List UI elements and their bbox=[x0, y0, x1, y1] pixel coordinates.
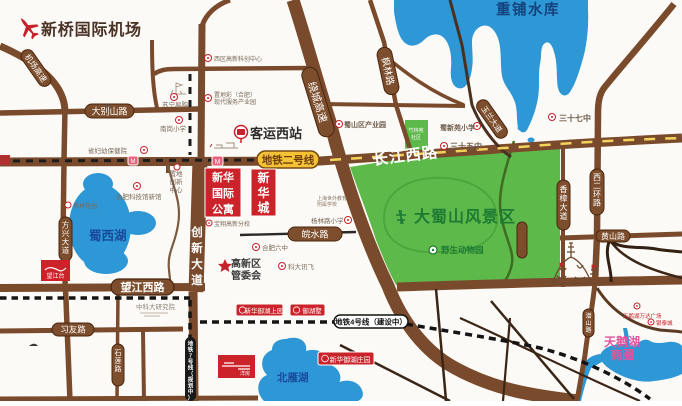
svg-text:西区高新科创中心: 西区高新科创中心 bbox=[214, 55, 262, 63]
svg-text:洋房: 洋房 bbox=[240, 370, 250, 377]
svg-text:新华国际公寓: 新华国际公寓 bbox=[212, 170, 234, 216]
svg-text:地铁4号线（建设中）: 地铁4号线（建设中） bbox=[335, 317, 407, 327]
svg-text:西二环路: 西二环路 bbox=[593, 173, 601, 208]
svg-text:商圈: 商圈 bbox=[610, 347, 634, 362]
svg-text:银泰城: 银泰城 bbox=[656, 319, 673, 327]
svg-text:新华御湖上园: 新华御湖上园 bbox=[245, 306, 284, 315]
svg-text:望江台: 望江台 bbox=[46, 272, 64, 280]
svg-text:野生动物园: 野生动物园 bbox=[441, 245, 484, 255]
svg-text:香樟大道: 香樟大道 bbox=[560, 184, 568, 221]
svg-text:杨林路小学: 杨林路小学 bbox=[311, 216, 344, 225]
svg-text:地铁7号线（规划中）: 地铁7号线（规划中） bbox=[188, 340, 194, 402]
svg-text:潜山路: 潜山路 bbox=[585, 312, 591, 334]
svg-text:黄山路: 黄山路 bbox=[601, 231, 625, 241]
svg-text:习友路: 习友路 bbox=[60, 325, 86, 335]
svg-text:M: M bbox=[215, 159, 221, 166]
svg-text:客运西站: 客运西站 bbox=[250, 126, 302, 141]
svg-text:石莲路: 石莲路 bbox=[115, 349, 122, 373]
svg-text:宝翔高新分校: 宝翔高新分校 bbox=[214, 220, 250, 228]
svg-text:置地彩（合肥）: 置地彩（合肥） bbox=[214, 91, 256, 99]
svg-text:苏宁易购: 苏宁易购 bbox=[162, 100, 189, 109]
svg-text:管委会: 管委会 bbox=[231, 269, 261, 282]
svg-text:大别山路: 大别山路 bbox=[91, 106, 127, 117]
svg-text:天鹅湖万达广场: 天鹅湖万达广场 bbox=[623, 312, 662, 320]
svg-text:置地创新中心: 置地创新中心 bbox=[170, 169, 184, 194]
svg-text:方兴大道: 方兴大道 bbox=[62, 220, 70, 256]
svg-text:蜀西湖: 蜀西湖 bbox=[89, 228, 127, 243]
svg-text:竹林苑: 竹林苑 bbox=[408, 127, 423, 134]
svg-text:科大讯飞: 科大讯飞 bbox=[288, 262, 315, 271]
svg-text:合肥科技馆新馆: 合肥科技馆新馆 bbox=[116, 192, 162, 201]
svg-text:M: M bbox=[131, 159, 136, 165]
svg-text:南岗小学: 南岗小学 bbox=[160, 124, 187, 133]
svg-text:合肥六中: 合肥六中 bbox=[262, 243, 288, 252]
svg-text:奥林花园: 奥林花园 bbox=[73, 202, 97, 210]
svg-text:北雁湖: 北雁湖 bbox=[277, 371, 309, 384]
svg-text:中科大研究院: 中科大研究院 bbox=[136, 302, 176, 311]
svg-text:蜀新苑小学: 蜀新苑小学 bbox=[440, 123, 475, 132]
svg-text:重铺水库: 重铺水库 bbox=[496, 1, 560, 19]
svg-text:三十七中: 三十七中 bbox=[559, 113, 591, 123]
svg-text:附属学校: 附属学校 bbox=[317, 201, 337, 208]
svg-text:天鹅湖: 天鹅湖 bbox=[604, 334, 640, 349]
svg-text:望江西路: 望江西路 bbox=[121, 280, 166, 294]
svg-text:新华城: 新华城 bbox=[257, 170, 269, 215]
svg-text:新华御湖庄园: 新华御湖庄园 bbox=[330, 355, 371, 364]
svg-text:三十五中: 三十五中 bbox=[450, 141, 482, 151]
svg-text:社区: 社区 bbox=[411, 134, 421, 141]
svg-text:御湖墅: 御湖墅 bbox=[302, 306, 322, 315]
svg-text:新桥国际机场: 新桥国际机场 bbox=[41, 20, 142, 39]
svg-text:蜀山区产业园: 蜀山区产业园 bbox=[344, 120, 386, 129]
svg-text:省妇幼保健院: 省妇幼保健院 bbox=[88, 146, 128, 155]
svg-text:皖水路: 皖水路 bbox=[301, 229, 328, 240]
svg-text:上海世外教育: 上海世外教育 bbox=[317, 195, 347, 202]
svg-text:现代服务产业园: 现代服务产业园 bbox=[214, 98, 256, 106]
svg-text:地铁二号线: 地铁二号线 bbox=[262, 154, 315, 167]
svg-text:大蜀山风景区: 大蜀山风景区 bbox=[414, 207, 516, 226]
svg-text:高新区: 高新区 bbox=[231, 257, 261, 270]
